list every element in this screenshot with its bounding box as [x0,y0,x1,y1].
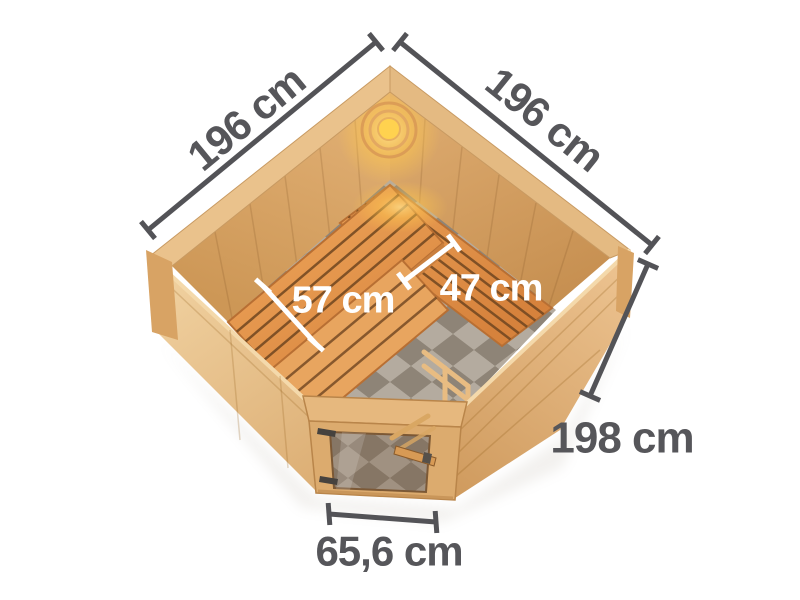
corner-lamp [362,103,416,157]
lamp-glow-on-bench [352,181,448,233]
sauna-door [309,416,461,500]
dimension-label-bench-right: 47 cm [440,267,543,309]
sauna-top-view-illustration: 196 cm 196 cm 57 cm 47 cm 198 cm [0,0,800,600]
dimension-label-door-width: 65,6 cm [315,528,462,575]
dimension-label-bench-left: 57 cm [292,279,395,321]
dimension-label-height: 198 cm [550,413,693,462]
sauna-floorplan-image: 196 cm 196 cm 57 cm 47 cm 198 cm [0,0,800,600]
